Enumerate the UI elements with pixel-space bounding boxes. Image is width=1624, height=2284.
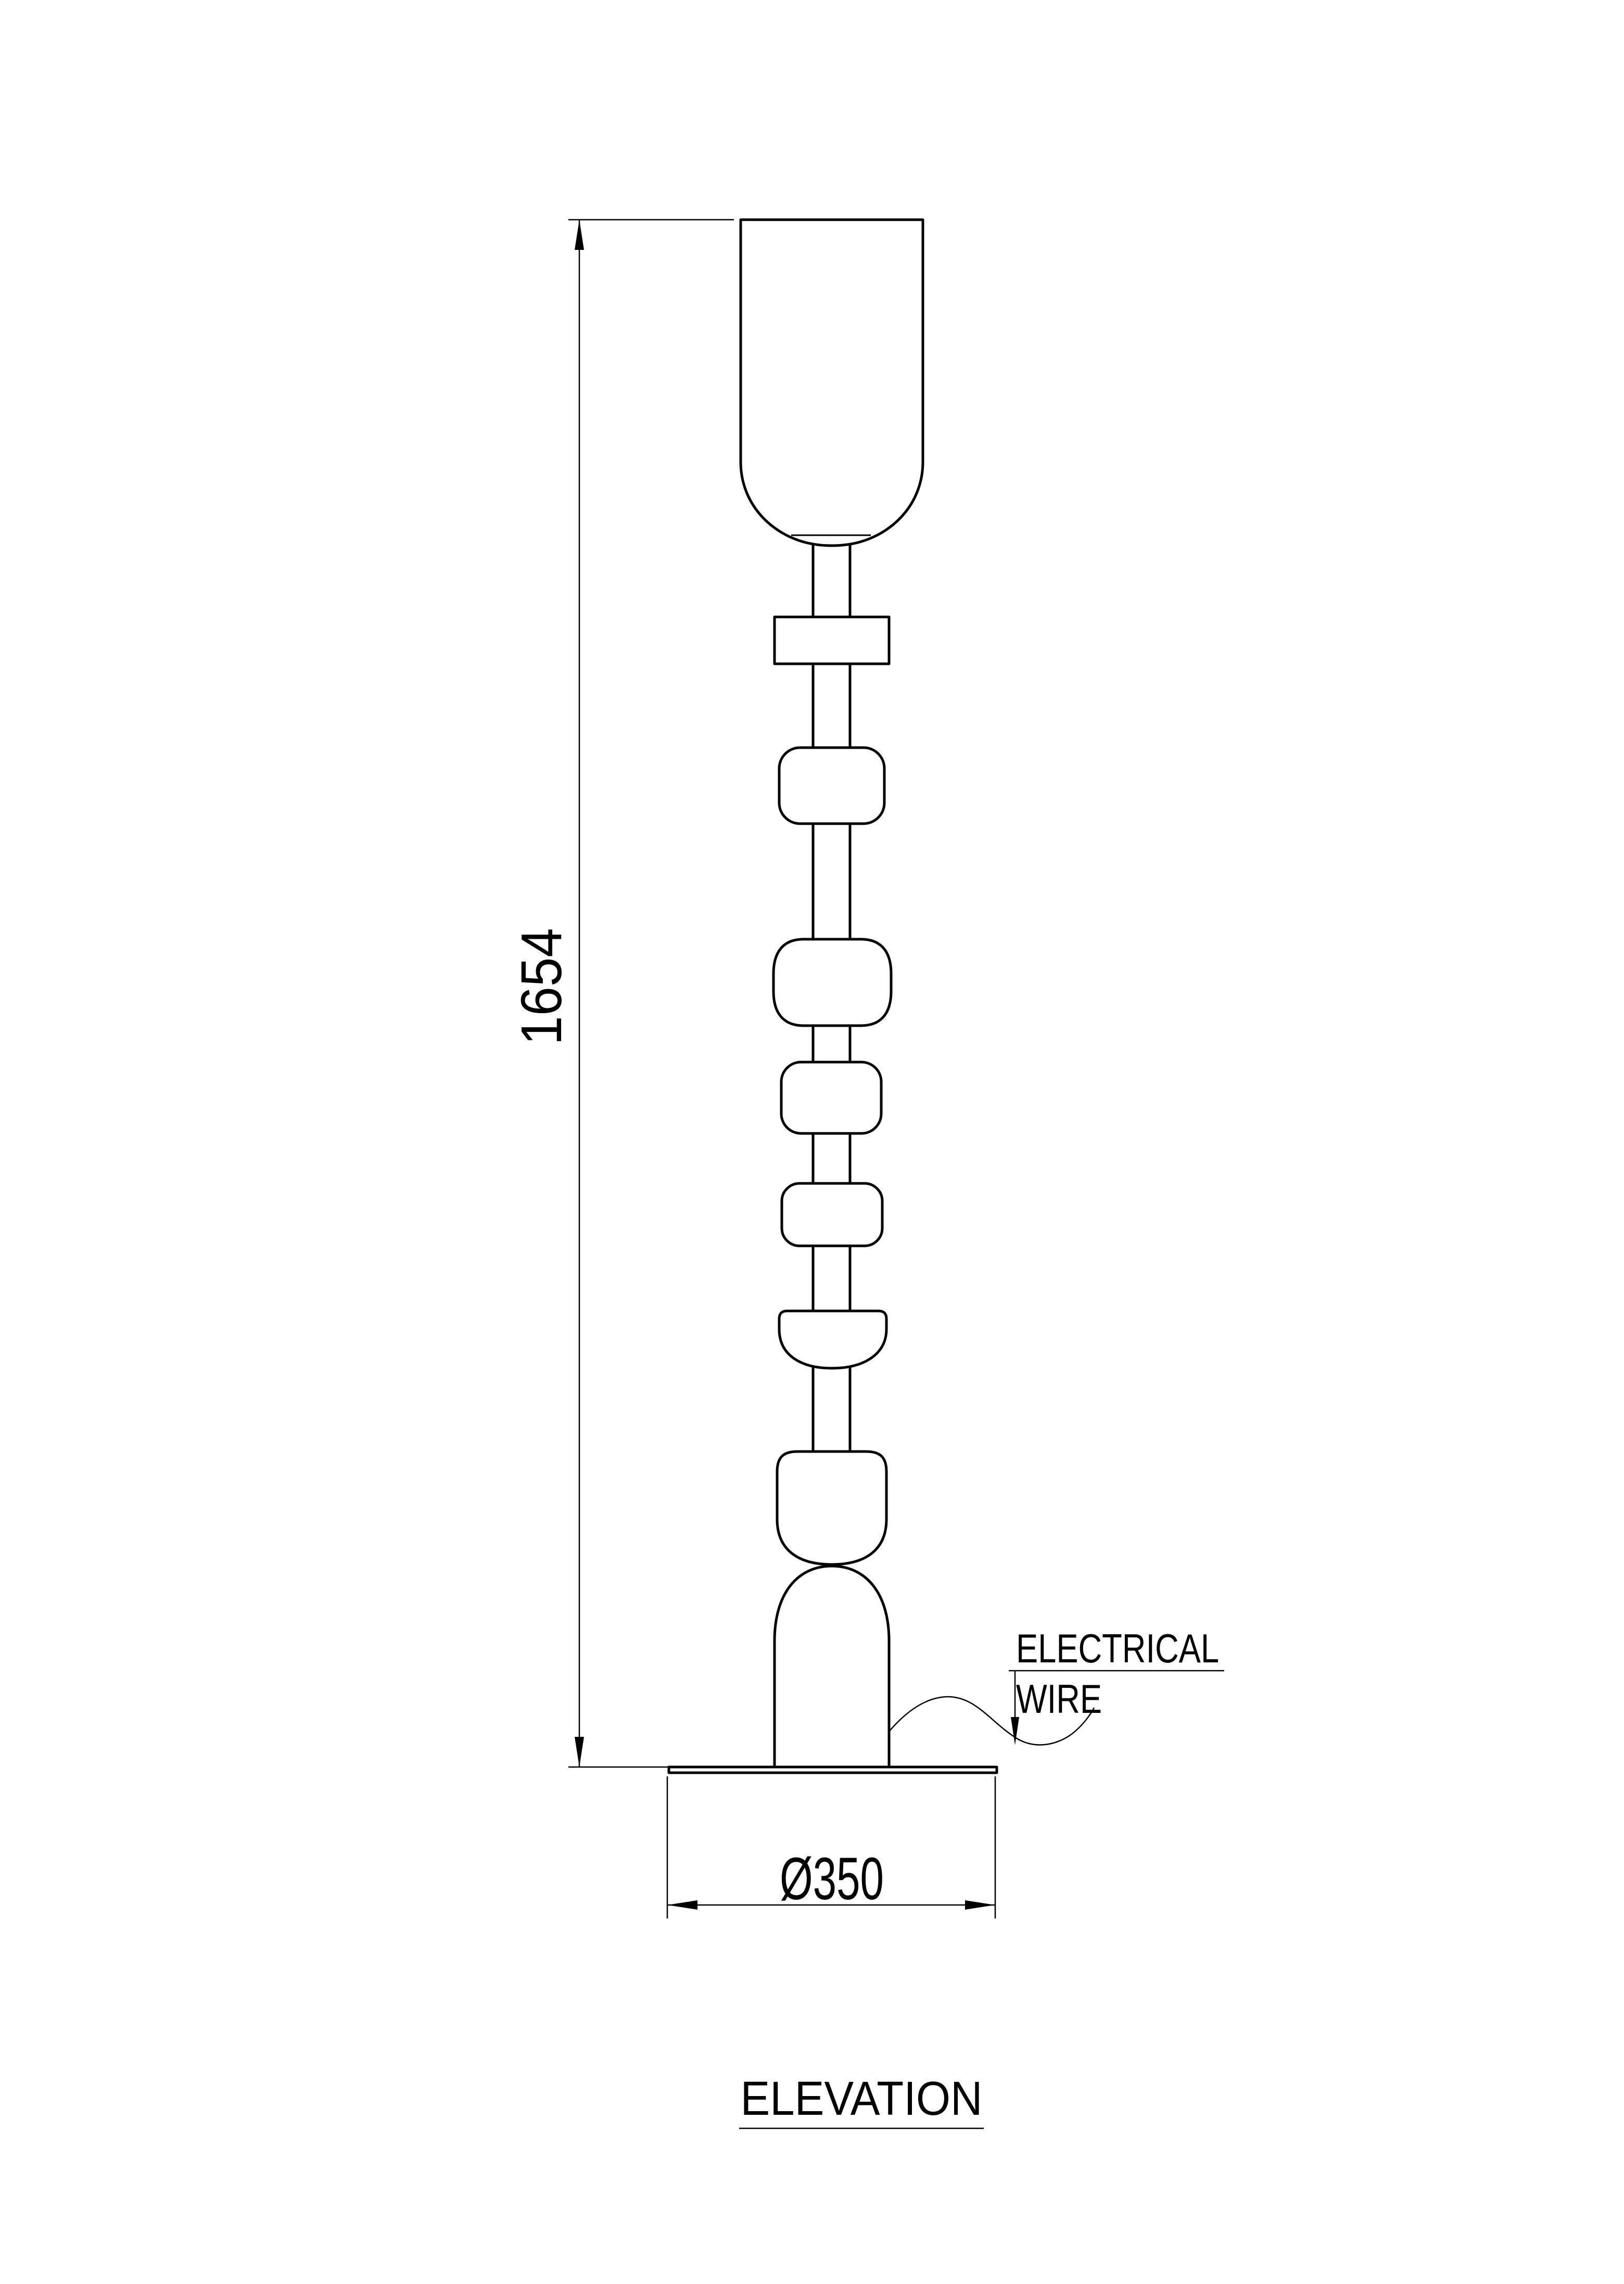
base-dome [775,1566,889,1767]
bead-6 [777,1452,886,1564]
diameter-dimension-label: Ø350 [780,1846,884,1912]
drawing-sheet: 1654 ELECTRICAL WIRE [0,0,1624,2284]
wire-label-line2: WIRE [1016,1676,1102,1722]
diameter-dimension: Ø350 [667,1776,995,1919]
elevation-drawing: 1654 ELECTRICAL WIRE [0,0,1624,2284]
bead-2 [773,939,891,1026]
lamp-shade-outline [741,220,923,546]
diameter-arrow-left-icon [667,1900,697,1910]
bead-1 [779,748,884,824]
bead-5 [779,1311,886,1368]
height-dimension: 1654 [510,220,734,1767]
wire-label-line1: ELECTRICAL [1016,1625,1219,1671]
height-arrow-up-icon [575,220,584,250]
view-title: ELEVATION [739,2072,984,2128]
collar-block [775,617,889,664]
view-title-label: ELEVATION [741,2072,983,2125]
height-dimension-label: 1654 [510,928,574,1045]
floor-lamp-outline [669,220,997,1773]
height-arrow-down-icon [575,1737,584,1767]
wire-callout: ELECTRICAL WIRE [889,1625,1224,1745]
bead-3 [781,1062,881,1133]
base-plate [669,1767,997,1773]
bead-4 [782,1183,882,1246]
diameter-arrow-right-icon [965,1900,995,1910]
